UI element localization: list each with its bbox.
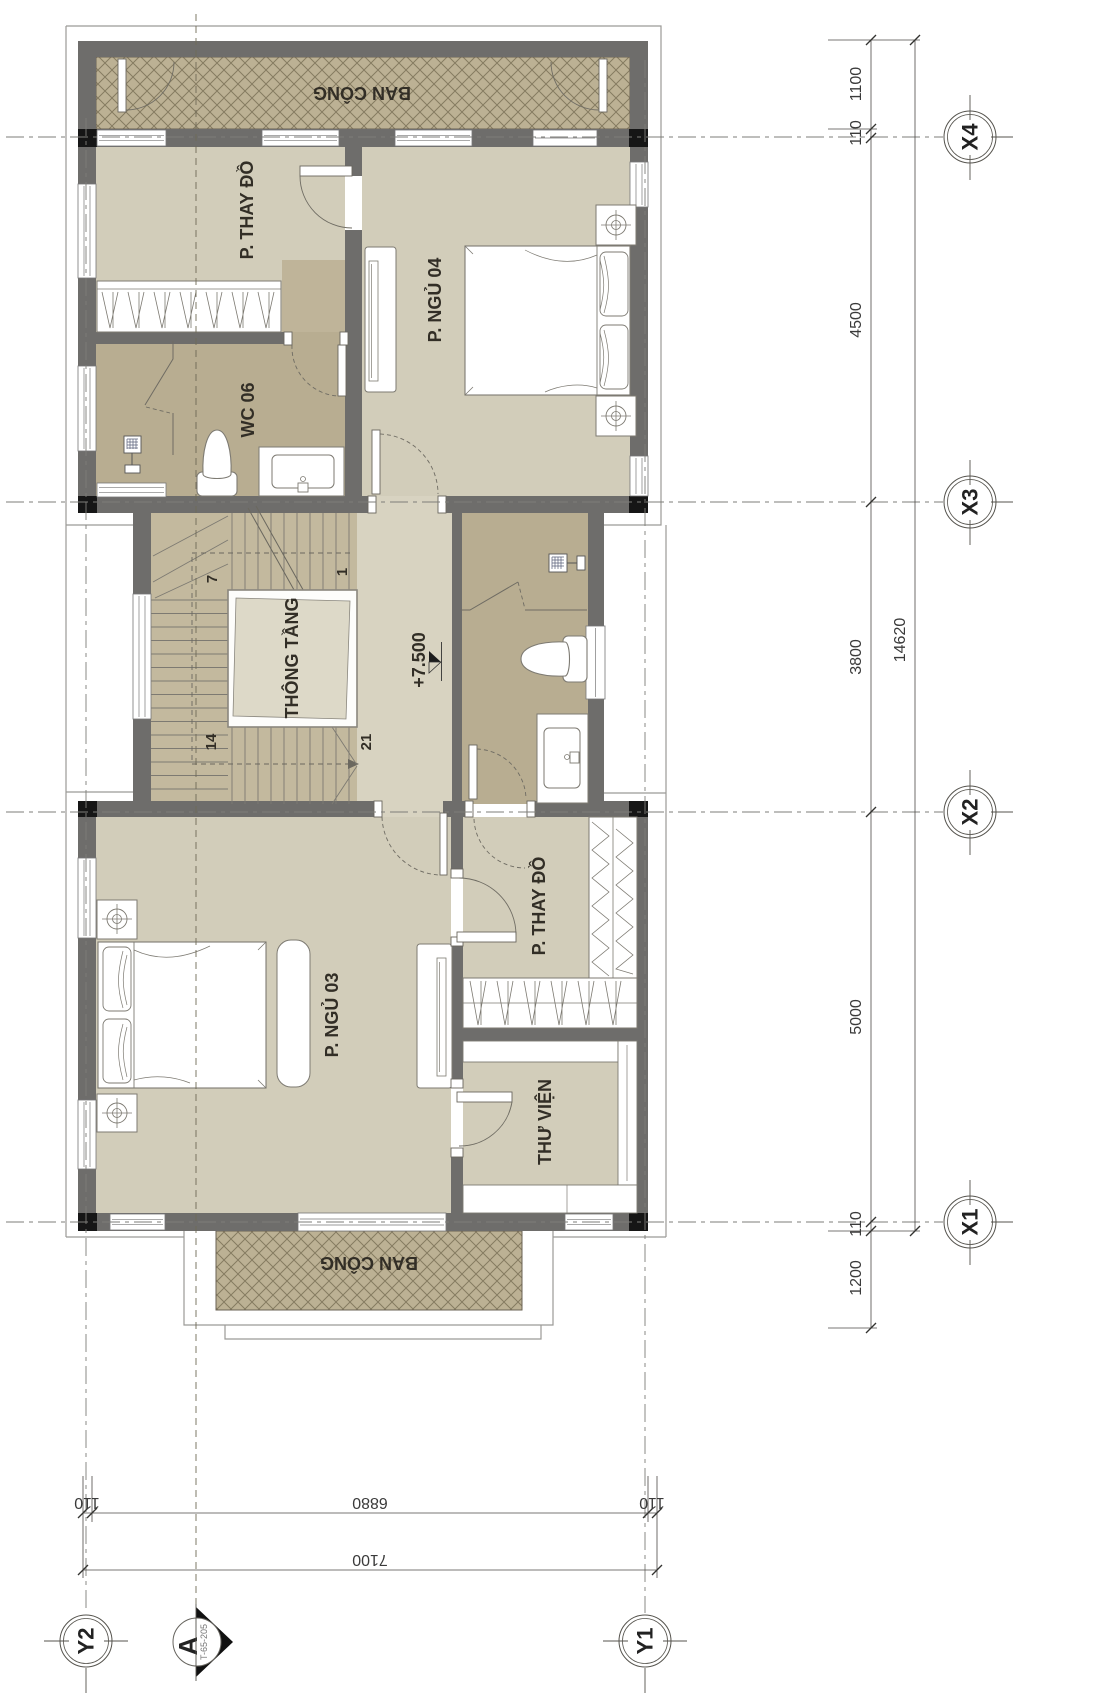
svg-text:THƯ VIỆN: THƯ VIỆN: [534, 1079, 555, 1165]
svg-text:P. THAY ĐỒ: P. THAY ĐỒ: [528, 857, 549, 956]
svg-text:P. THAY ĐỒ: P. THAY ĐỒ: [236, 161, 257, 260]
svg-text:4500: 4500: [848, 302, 865, 338]
svg-text:X4: X4: [958, 123, 983, 151]
svg-text:X1: X1: [958, 1209, 983, 1236]
svg-text:110: 110: [848, 1211, 865, 1237]
svg-text:1100: 1100: [848, 67, 865, 102]
svg-text:Y1: Y1: [633, 1628, 658, 1655]
svg-text:WC 06: WC 06: [238, 382, 258, 437]
svg-text:5000: 5000: [848, 999, 865, 1035]
svg-text:1200: 1200: [848, 1260, 865, 1296]
svg-text:THÔNG TẦNG: THÔNG TẦNG: [281, 598, 302, 719]
svg-text:3800: 3800: [848, 639, 865, 675]
svg-text:BAN CÔNG: BAN CÔNG: [320, 1253, 418, 1274]
svg-text:P. NGỦ 04: P. NGỦ 04: [424, 258, 445, 343]
svg-text:21: 21: [358, 734, 375, 751]
svg-text:T-65-205: T-65-205: [199, 1624, 209, 1660]
svg-text:110: 110: [848, 120, 865, 146]
svg-text:+7.500: +7.500: [409, 632, 429, 688]
svg-text:Y2: Y2: [74, 1628, 99, 1655]
svg-text:BAN CÔNG: BAN CÔNG: [313, 83, 411, 104]
svg-text:P. NGỦ 03: P. NGỦ 03: [321, 973, 342, 1058]
svg-text:110: 110: [639, 1494, 665, 1511]
svg-text:X3: X3: [958, 489, 983, 516]
svg-text:110: 110: [74, 1494, 100, 1511]
svg-text:X2: X2: [958, 799, 983, 826]
svg-text:7100: 7100: [352, 1551, 388, 1568]
svg-text:7: 7: [204, 575, 221, 583]
svg-text:14: 14: [203, 733, 220, 750]
svg-text:14620: 14620: [892, 618, 909, 663]
svg-text:6880: 6880: [352, 1494, 388, 1511]
svg-text:1: 1: [334, 568, 351, 576]
